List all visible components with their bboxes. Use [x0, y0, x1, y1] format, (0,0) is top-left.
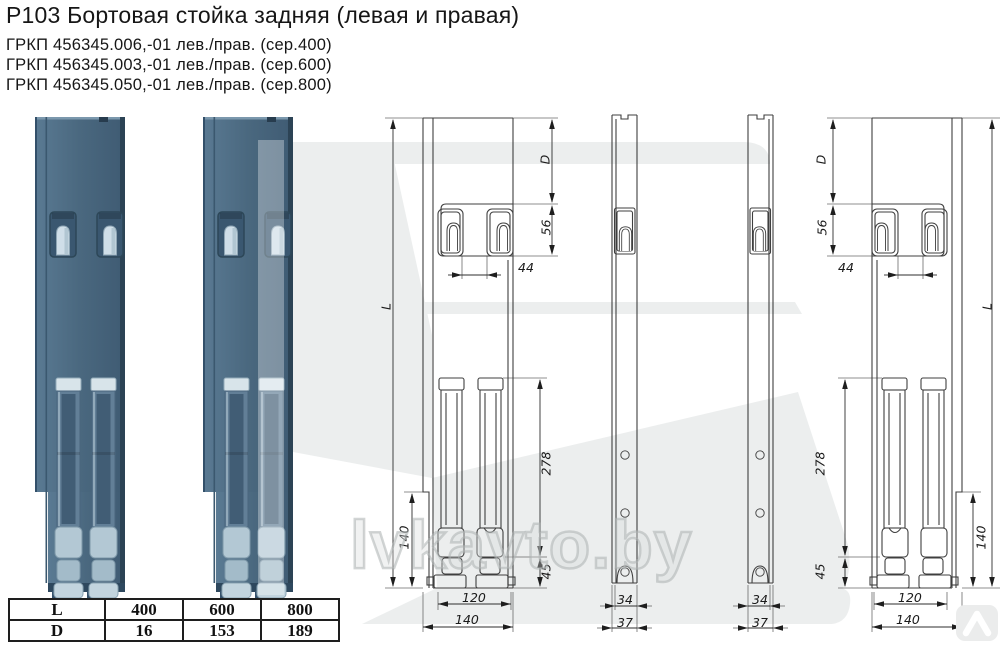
size-table-cell: 800 [261, 599, 339, 620]
size-table-cell: 16 [105, 620, 183, 641]
dim-label-278-left: 278 [539, 447, 554, 481]
technical-drawings [0, 0, 1000, 644]
drawing-side-right [733, 115, 788, 632]
dim-label-L-right: L [980, 290, 995, 324]
dim-label-278-right: 278 [813, 447, 828, 481]
dim-label-45-left: 45 [539, 555, 554, 589]
catalog-page: { "header": { "title": "Р103 Бортовая ст… [0, 0, 1000, 644]
size-table-cell: 153 [183, 620, 261, 641]
drawing-side-left [597, 115, 652, 632]
size-table-cell: 189 [261, 620, 339, 641]
dim-label-140-right-side: 140 [974, 521, 989, 555]
part-number-ser400: ГРКП 456345.006,-01 лев./прав. (сер.400) [6, 35, 519, 55]
dim-label-140-left-bottom: 140 [455, 612, 479, 627]
dim-label-D-right: D [814, 143, 829, 177]
size-table-row-label: L [9, 599, 105, 620]
size-table-row-label: D [9, 620, 105, 641]
size-table: L 400 600 800 D 16 153 189 [8, 598, 340, 642]
dim-label-D-left: D [538, 143, 553, 177]
dim-label-34-side-left: 34 [617, 592, 633, 607]
dim-label-56-right: 56 [815, 211, 830, 245]
page-title: Р103 Бортовая стойка задняя (левая и пра… [6, 2, 519, 29]
size-table-cell: 600 [183, 599, 261, 620]
dim-label-37-side-right: 37 [752, 615, 768, 630]
drawing-front-right [827, 118, 1000, 632]
dim-label-37-side-left: 37 [617, 615, 633, 630]
dim-label-L-left: L [379, 290, 394, 324]
drawing-front-left [385, 118, 558, 632]
part-number-ser600: ГРКП 456345.003,-01 лев./прав. (сер.600) [6, 55, 519, 75]
dim-label-56-left: 56 [539, 211, 554, 245]
site-logo-badge [956, 605, 998, 641]
dim-label-120-right: 120 [898, 590, 922, 605]
dim-label-140-right-bottom: 140 [896, 612, 920, 627]
dim-label-34-side-right: 34 [752, 592, 768, 607]
part-number-ser800: ГРКП 456345.050,-01 лев./прав. (сер.800) [6, 75, 519, 95]
size-table-cell: 400 [105, 599, 183, 620]
lambda-logo-icon [956, 605, 998, 641]
dim-label-45-right: 45 [813, 555, 828, 589]
dim-label-120-left: 120 [462, 590, 486, 605]
dim-label-140-left-side: 140 [397, 521, 412, 555]
dim-label-44-right: 44 [838, 260, 854, 275]
dim-label-44-left: 44 [518, 260, 534, 275]
header: Р103 Бортовая стойка задняя (левая и пра… [6, 2, 519, 95]
